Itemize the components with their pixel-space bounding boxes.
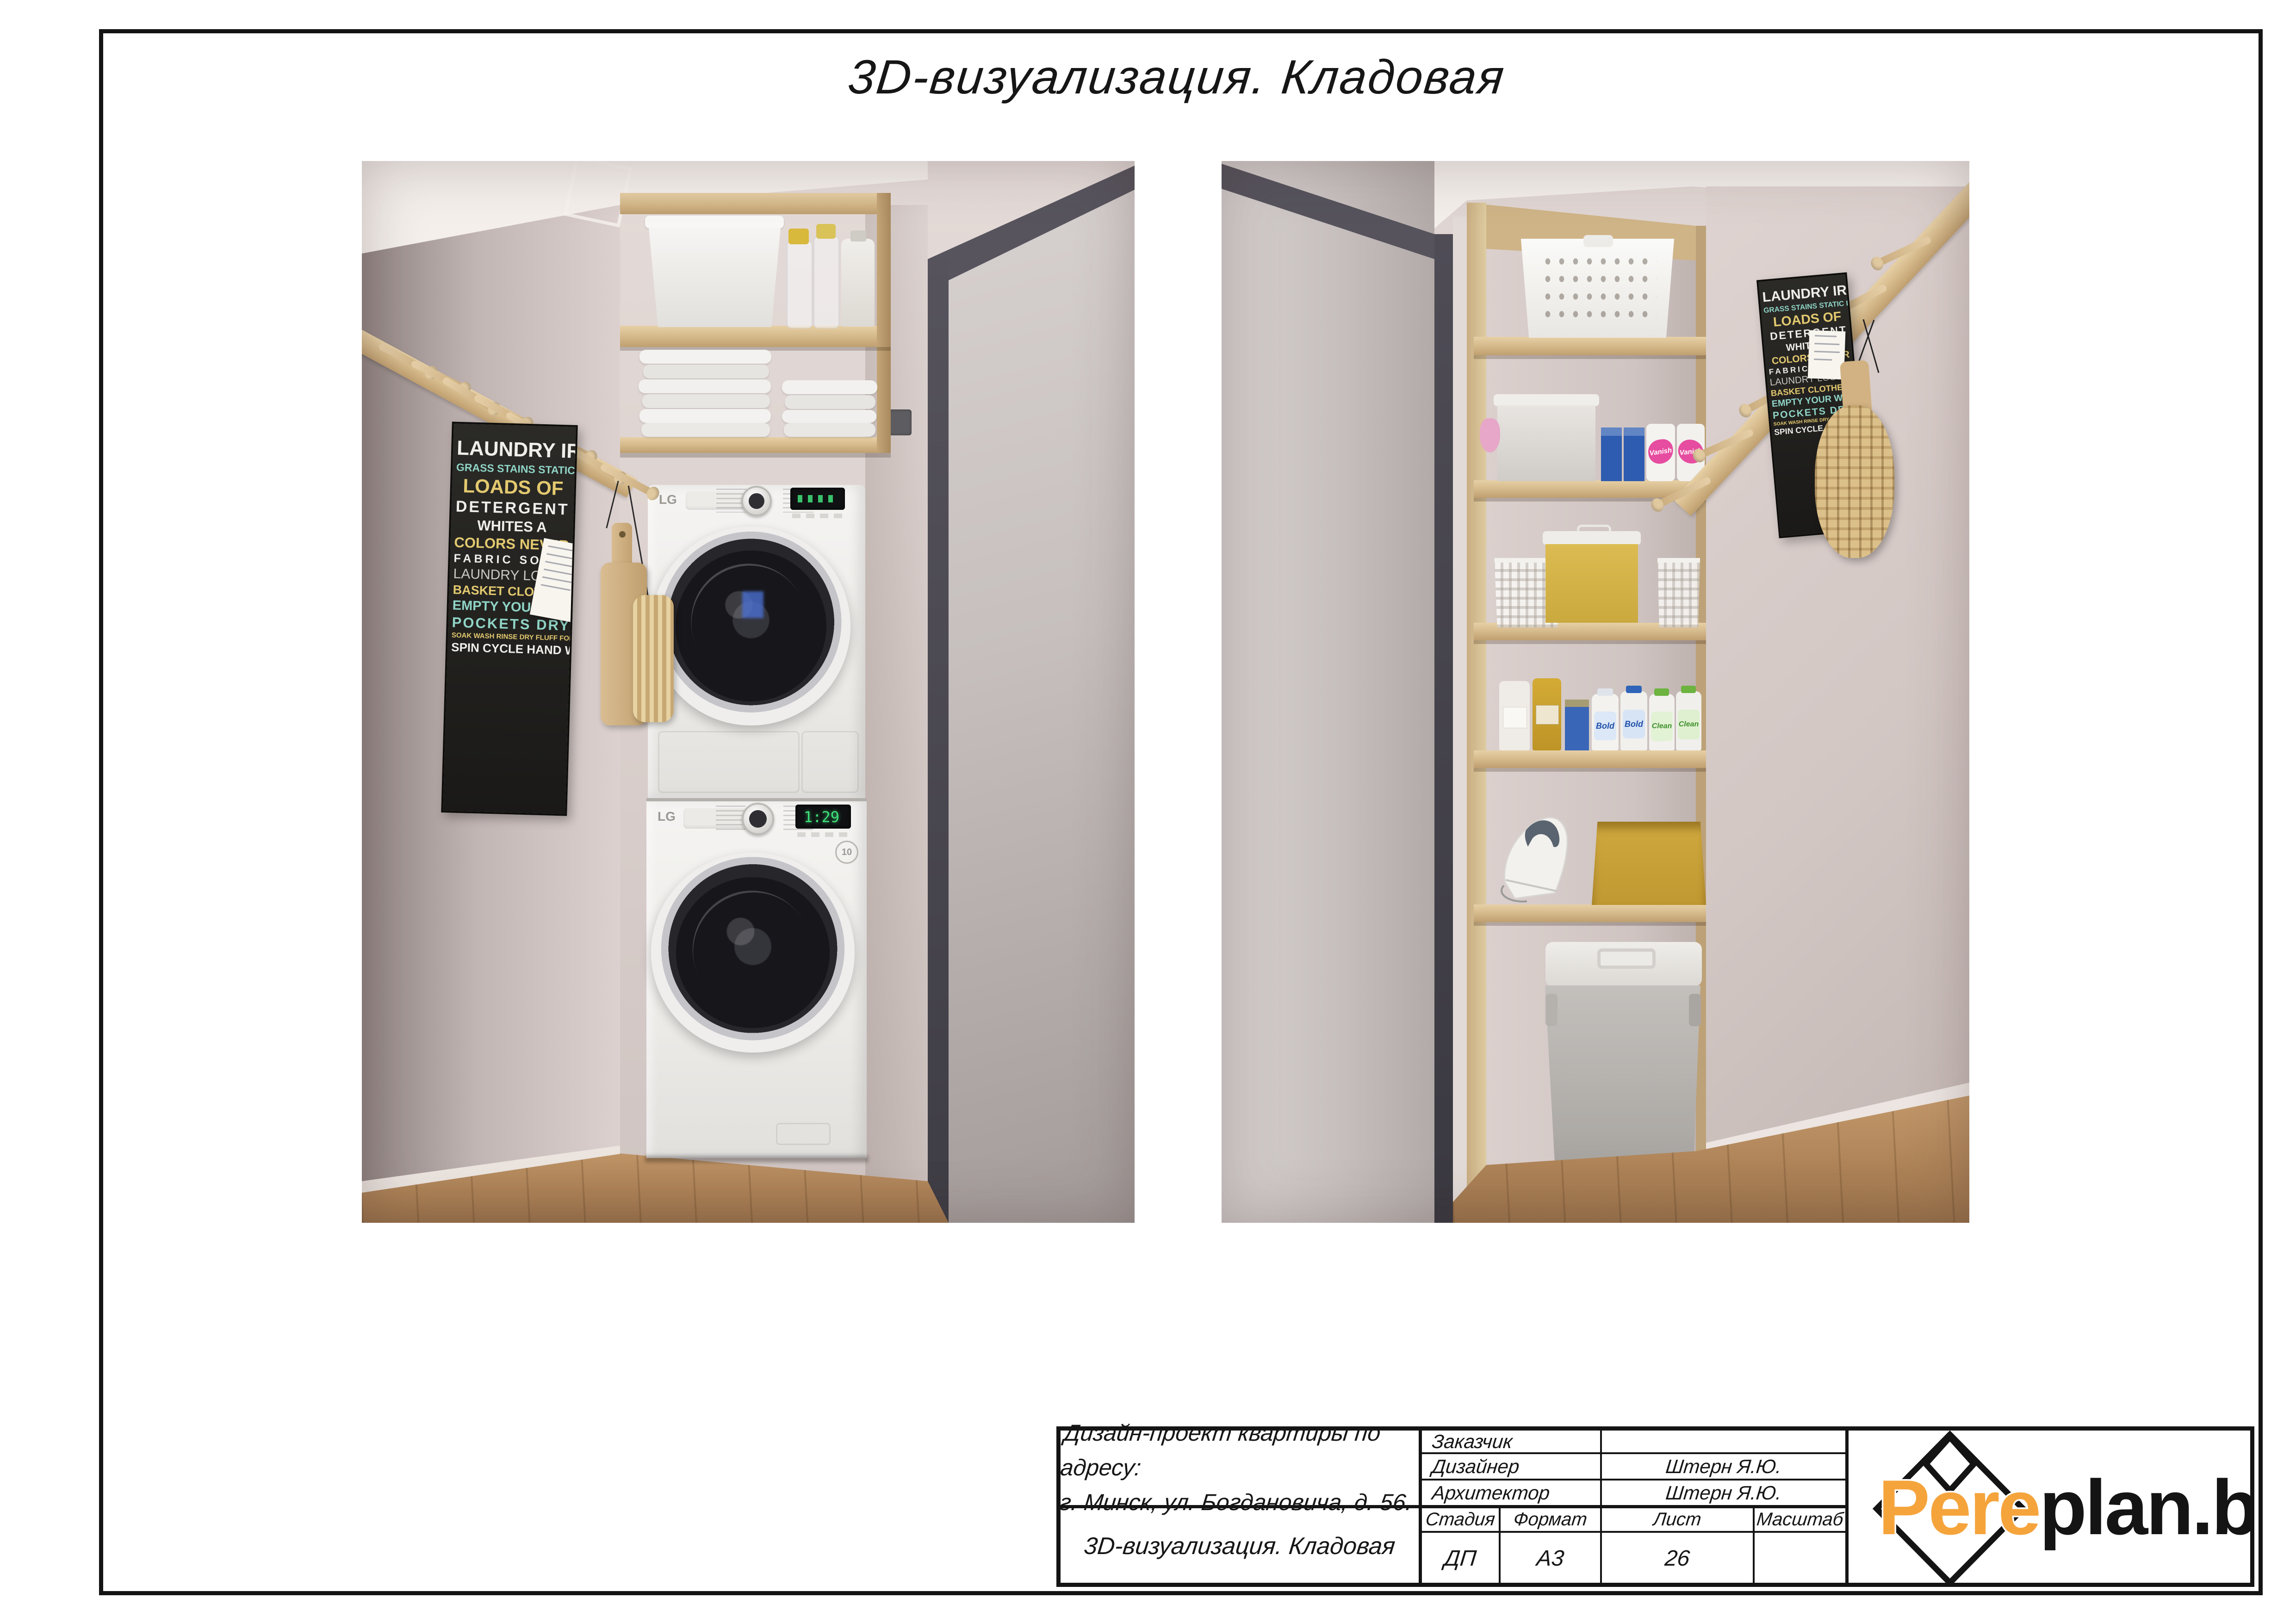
meta-format-label: Формат [1499,1508,1601,1531]
render-laundry-machines: LG LG 1:29 [362,161,1135,1223]
svg-text:Pereplan.by: Pereplan.by [1878,1464,2250,1551]
project-address-cell: Дизайн-проект квартиры по адресу: г. Мин… [1057,1431,1423,1505]
photo-vignette [1222,161,1969,1223]
role-architect-label: Архитектор [1421,1481,1601,1505]
drawing-sheet: 3D-визуализация. Кладовая [0,0,2296,1623]
photo-vignette [362,161,1135,1223]
page-title: 3D-визуализация. Кладовая [96,50,2258,105]
role-client-label: Заказчик [1421,1431,1601,1452]
logo-cell: Pereplan.by [1849,1431,2250,1584]
render-storage-shelves: Vanish Vanish Bold [1222,161,1969,1223]
meta-stage-value: ДП [1419,1533,1502,1584]
logo-word-accent: Pere [1878,1464,2039,1551]
role-client-value [1601,1431,1847,1452]
role-architect-value: Штерн Я.Ю. [1601,1481,1847,1505]
sheet-name-cell: 3D-визуализация. Кладовая [1056,1508,1422,1584]
meta-stage-label: Стадия [1421,1508,1500,1531]
meta-scale-label: Масштаб [1753,1508,1846,1531]
title-block: Дизайн-проект квартиры по адресу: г. Мин… [1056,1426,2254,1587]
meta-scale-value [1752,1533,1848,1584]
meta-sheetno-value: 26 [1599,1533,1756,1584]
role-designer-value: Штерн Я.Ю. [1601,1454,1847,1479]
pereplan-logo: Pereplan.by [1849,1431,2250,1584]
logo-word-rest: plan.by [2039,1464,2250,1551]
meta-sheetno-label: Лист [1601,1508,1754,1531]
project-line1: Дизайн-проект квартиры по адресу: [1059,1416,1424,1485]
role-designer-label: Дизайнер [1421,1454,1601,1479]
meta-format-value: А3 [1498,1533,1603,1584]
